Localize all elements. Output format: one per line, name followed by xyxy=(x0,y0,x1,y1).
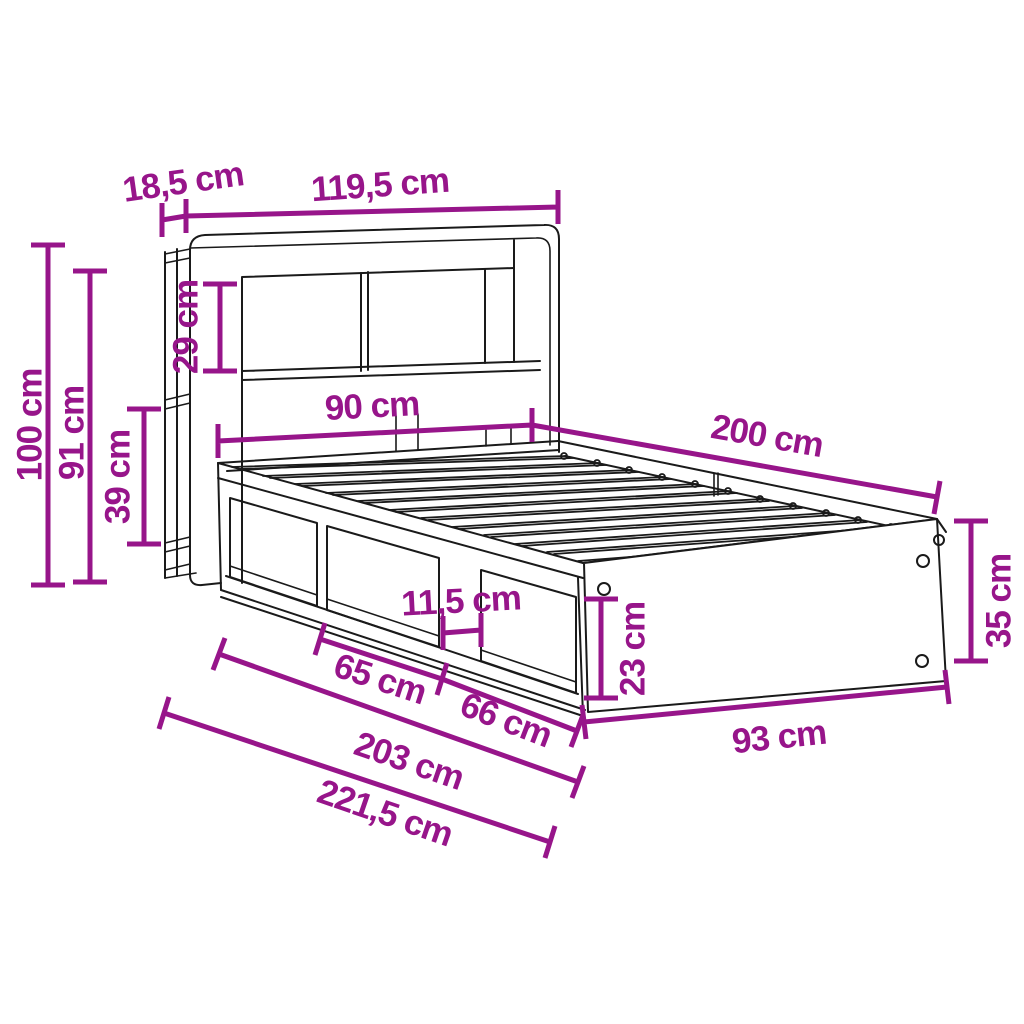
dim-headboard-depth: 18,5 cm xyxy=(120,154,246,237)
dim-storage-left-width: 65 cm xyxy=(315,623,447,712)
bed-line-art xyxy=(165,225,946,716)
dim-label: 91 cm xyxy=(53,386,92,480)
diagram-canvas: 18,5 cm 119,5 cm 29 cm 100 cm 91 cm 39 c… xyxy=(0,0,1024,1024)
dim-headboard-opening-height: 29 cm xyxy=(167,280,238,374)
dim-label: 119,5 cm xyxy=(310,161,450,210)
dim-label: 18,5 cm xyxy=(120,154,246,210)
dim-bed-width: 90 cm xyxy=(218,384,532,458)
dim-side-shelf-opening-height: 39 cm xyxy=(99,409,162,544)
dim-label: 100 cm xyxy=(11,369,50,482)
storage-opening xyxy=(230,498,317,606)
dim-label: 29 cm xyxy=(167,280,206,374)
dim-frame-height: 35 cm xyxy=(954,521,1019,661)
dim-label: 200 cm xyxy=(708,407,826,465)
dim-headboard-height: 91 cm xyxy=(53,271,108,582)
dim-label: 65 cm xyxy=(329,646,431,712)
dim-label: 90 cm xyxy=(324,384,420,428)
dim-label: 39 cm xyxy=(99,430,138,524)
dim-label: 35 cm xyxy=(980,554,1019,648)
dim-label: 23 cm xyxy=(614,602,653,696)
dim-line xyxy=(203,284,237,371)
dim-label: 11,5 cm xyxy=(400,578,521,623)
dim-label: 93 cm xyxy=(730,713,828,762)
dim-line xyxy=(162,203,186,237)
bed-frame-dimension-diagram: 18,5 cm 119,5 cm 29 cm 100 cm 91 cm 39 c… xyxy=(0,0,1024,1024)
